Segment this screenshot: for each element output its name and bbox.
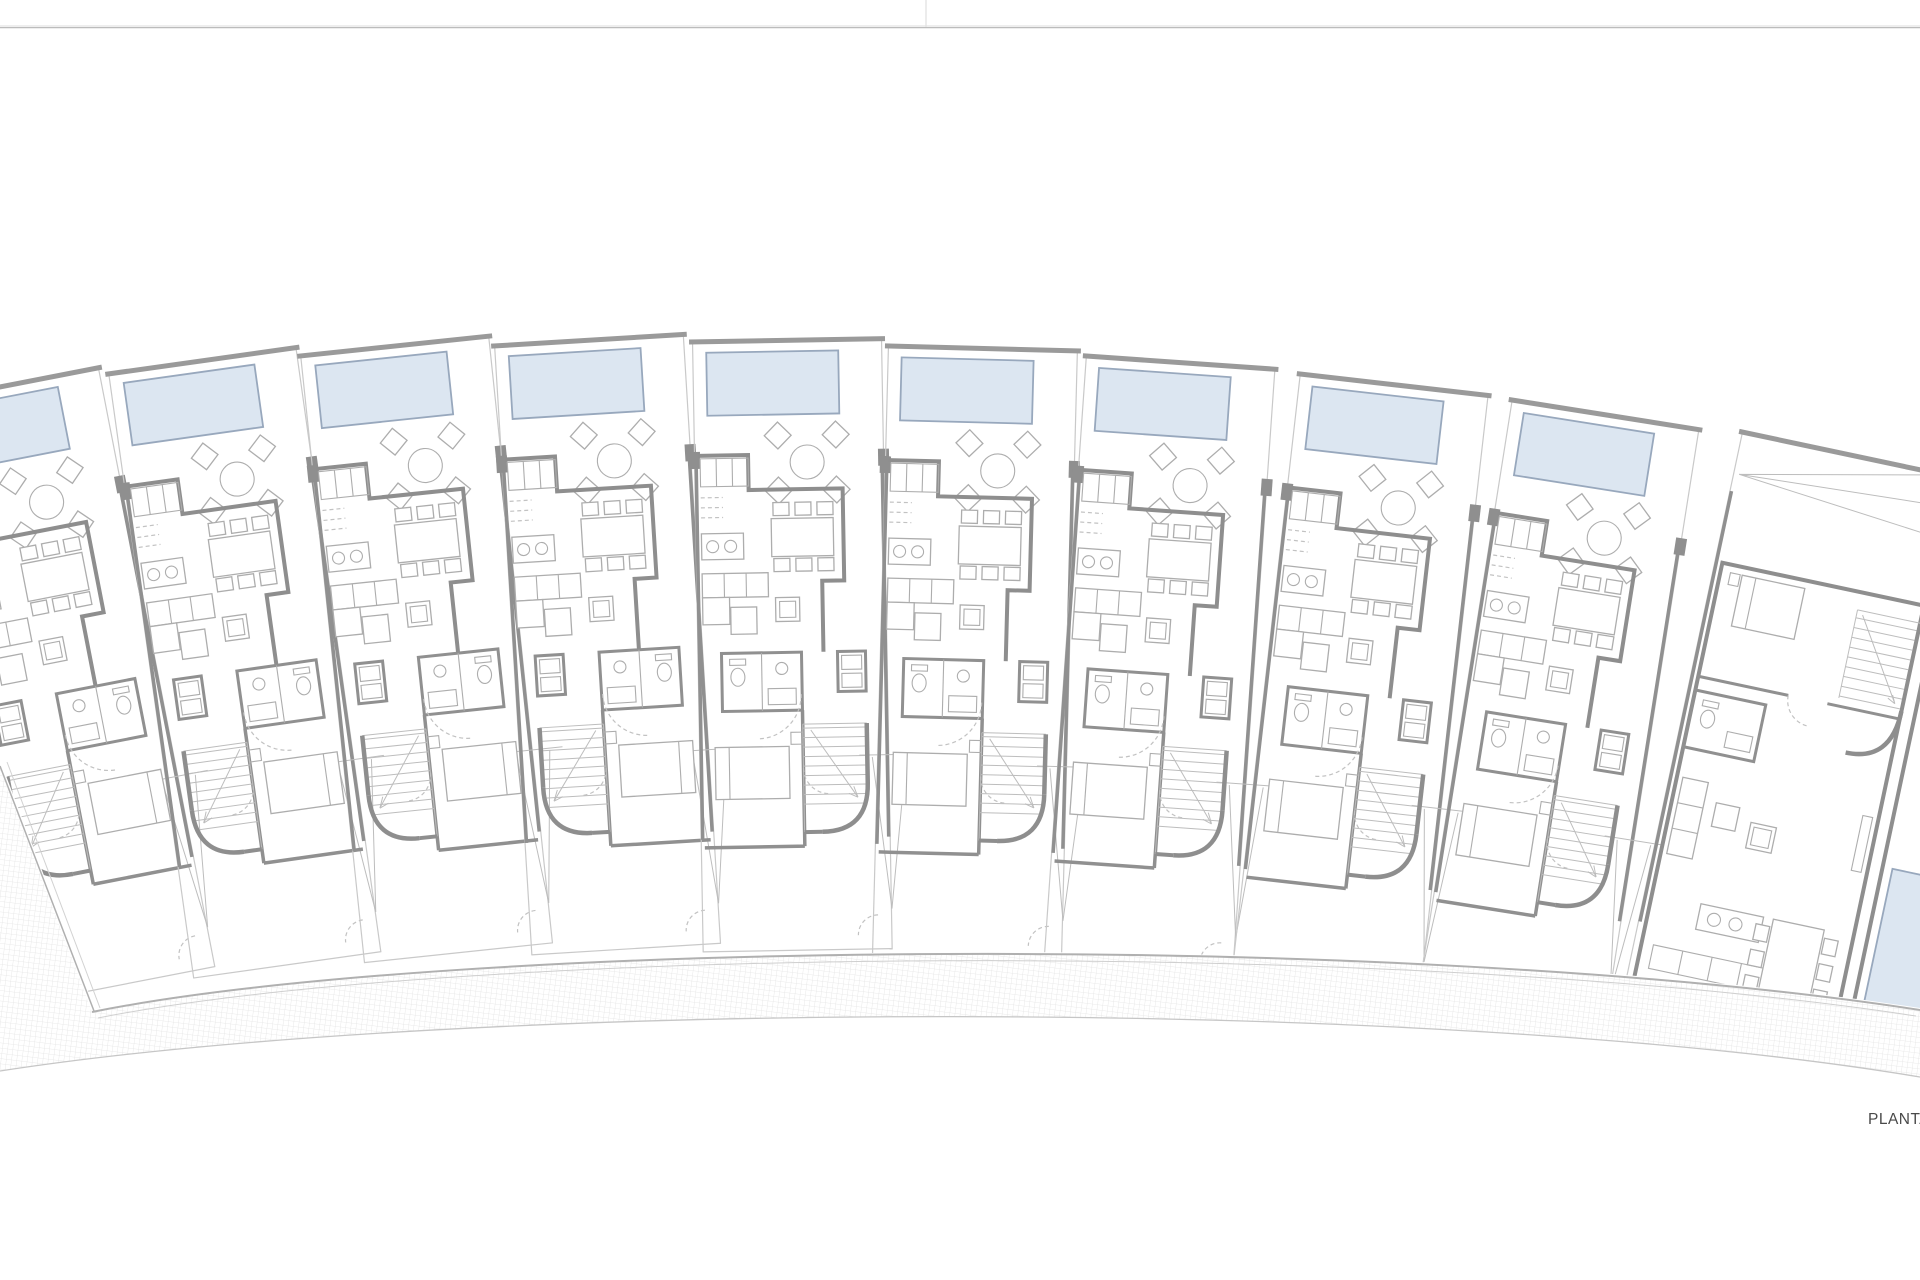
unit-plan-4 [489, 333, 751, 956]
page: PLANTA [0, 0, 1920, 1280]
unit-lower-8 [1246, 684, 1431, 895]
unit-lower-7 [1055, 668, 1232, 873]
unit-plan-6 [867, 346, 1108, 962]
unit-plan-8 [1226, 373, 1519, 1005]
unit-body-7 [1038, 356, 1305, 980]
unit-body-6 [867, 346, 1108, 962]
page-top-rule [0, 0, 1920, 28]
unit-lower-9 [1436, 709, 1628, 926]
unit-lower-5 [701, 651, 868, 848]
unit-lower-2 [173, 657, 362, 872]
unit-lower-4 [535, 646, 711, 850]
unit-body-5 [687, 338, 923, 952]
site-plan-drawing: PLANTA [0, 0, 1920, 1280]
unit-lower-6 [879, 658, 1048, 856]
unit-body-8 [1226, 373, 1519, 1005]
unit-plan-7 [1038, 356, 1305, 980]
unit-plan-2 [103, 343, 411, 978]
plan-title-label: PLANTA [1868, 1111, 1920, 1128]
unit-body-4 [489, 333, 751, 956]
unit-body-2 [103, 343, 411, 978]
unit-plan-5 [687, 338, 923, 952]
unit-lower-3 [355, 647, 538, 857]
